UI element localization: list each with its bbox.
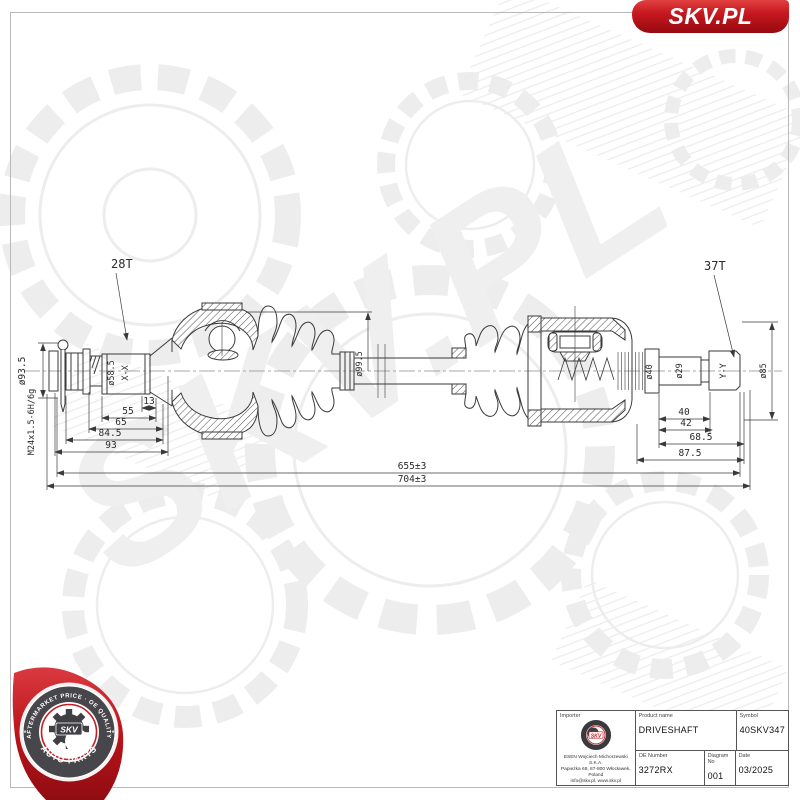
brand-banner: SKV.PL [632,0,789,33]
date-cell: Date 03/2025 [735,751,788,785]
product-name-value: DRIVESHAFT [639,725,733,735]
page: SKV.PL [0,0,800,800]
symbol-cell: Symbol 40SKV347 [736,711,788,750]
diagram-no-cell: Diagram No 001 [704,751,735,785]
symbol-label: Symbol [740,713,785,719]
importer-name: ESEN Wojciech Michorzewski S.K.A. [557,755,635,767]
oe-number-cell: OE Number 3272RX [636,751,704,785]
skv-stamp-logo: AFTERMARKET PRICE · OE QUALITY AUTO PART… [8,664,134,800]
product-name-cell: Product name DRIVESHAFT [636,711,736,750]
date-label: Date [739,753,785,759]
importer-contact: info@skv.pl, www.skv.pl [557,779,635,785]
diagram-no-value: 001 [708,771,732,781]
importer-address: Papieżka 69, 87-800 Włocławek, Poland [557,767,635,779]
product-name-label: Product name [639,713,733,719]
mini-stamp-logo: SKV [579,719,613,751]
brand-banner-text: SKV.PL [669,3,753,30]
oe-number-label: OE Number [639,753,701,759]
symbol-value: 40SKV347 [740,725,785,735]
stamp-star-left: * [23,729,26,738]
title-block: Importer SKV ESEN Wojciech Michorzewski … [556,710,789,786]
diagram-no-label: Diagram No [708,753,732,765]
importer-label: Importer [560,713,580,719]
stamp-brand: SKV [60,725,79,735]
mini-stamp-brand: SKV [590,733,601,739]
date-value: 03/2025 [739,765,785,775]
stamp-star-right: * [111,729,114,738]
oe-number-value: 3272RX [639,765,701,775]
importer-cell: Importer SKV ESEN Wojciech Michorzewski … [557,711,636,785]
